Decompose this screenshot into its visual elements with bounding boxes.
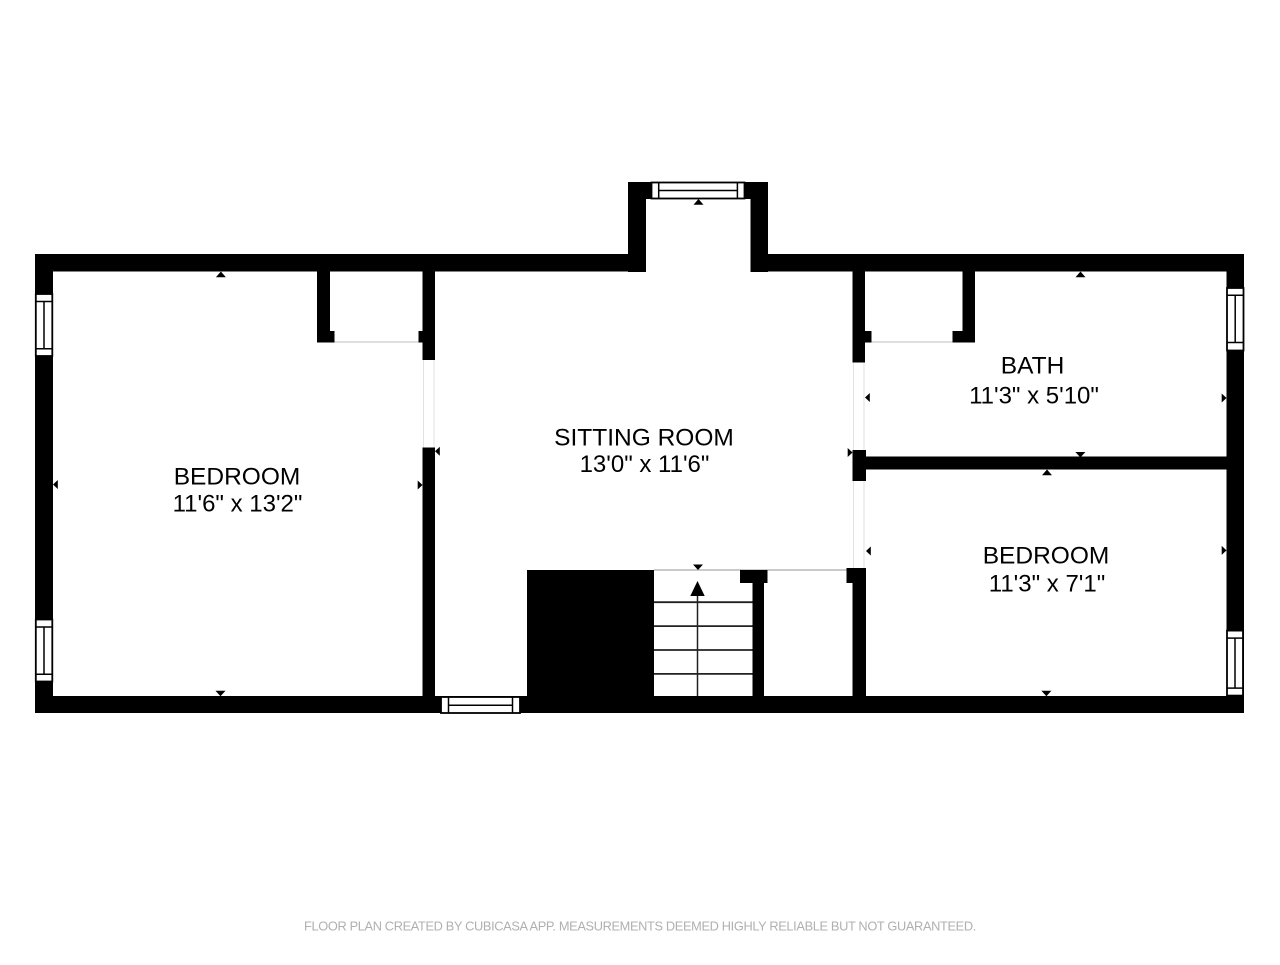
svg-text:11'3" x 5'10": 11'3" x 5'10" — [969, 383, 1099, 410]
svg-text:SITTING ROOM: SITTING ROOM — [554, 425, 734, 452]
svg-text:BEDROOM: BEDROOM — [174, 464, 301, 491]
svg-text:FLOOR PLAN CREATED BY CUBICASA: FLOOR PLAN CREATED BY CUBICASA APP. MEAS… — [304, 919, 976, 934]
svg-text:13'0" x 11'6": 13'0" x 11'6" — [580, 451, 710, 478]
svg-text:11'6" x 13'2": 11'6" x 13'2" — [173, 491, 303, 518]
svg-text:BATH: BATH — [1001, 353, 1065, 380]
svg-text:BEDROOM: BEDROOM — [983, 543, 1110, 570]
svg-text:11'3" x 7'1": 11'3" x 7'1" — [989, 571, 1106, 598]
